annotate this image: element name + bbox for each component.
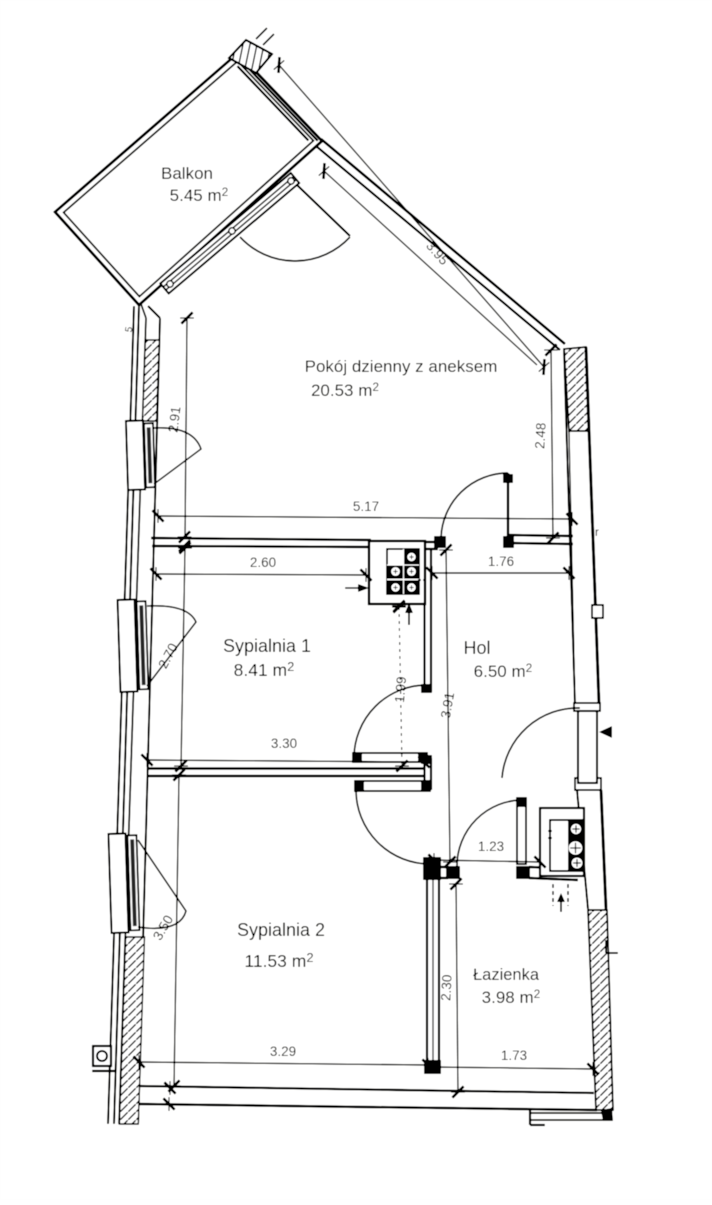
svg-text:11.53 m2: 11.53 m2 [244, 950, 313, 971]
svg-text:Hol: Hol [463, 638, 490, 658]
svg-text:r: r [595, 525, 599, 539]
svg-text:6.50 m2: 6.50 m2 [474, 661, 533, 681]
svg-text:2.91: 2.91 [165, 405, 183, 433]
svg-text:2.48: 2.48 [532, 422, 548, 449]
svg-text:8.41 m2: 8.41 m2 [234, 659, 295, 680]
svg-text:3.30: 3.30 [271, 736, 297, 751]
svg-text:2.60: 2.60 [250, 555, 276, 570]
svg-text:Łazienka: Łazienka [473, 966, 540, 984]
svg-text:2.30: 2.30 [438, 974, 454, 1001]
svg-text:3.98 m2: 3.98 m2 [482, 987, 541, 1007]
svg-text:Sypialnia 1: Sypialnia 1 [223, 636, 311, 656]
svg-text:1.73: 1.73 [501, 1048, 527, 1063]
svg-text:1.99: 1.99 [392, 676, 409, 703]
svg-text:20.53 m2: 20.53 m2 [311, 380, 379, 400]
svg-text:1.76: 1.76 [488, 554, 514, 569]
svg-text:Sypialnia 2: Sypialnia 2 [237, 920, 325, 940]
svg-text:Balkon: Balkon [161, 164, 213, 183]
svg-text:3.29: 3.29 [270, 1044, 296, 1059]
svg-text:1.23: 1.23 [478, 839, 504, 854]
svg-text:5.17: 5.17 [353, 499, 379, 514]
svg-text:Pokój dzienny z aneksem: Pokój dzienny z aneksem [305, 357, 498, 376]
svg-text:5.45 m2: 5.45 m2 [170, 185, 229, 205]
